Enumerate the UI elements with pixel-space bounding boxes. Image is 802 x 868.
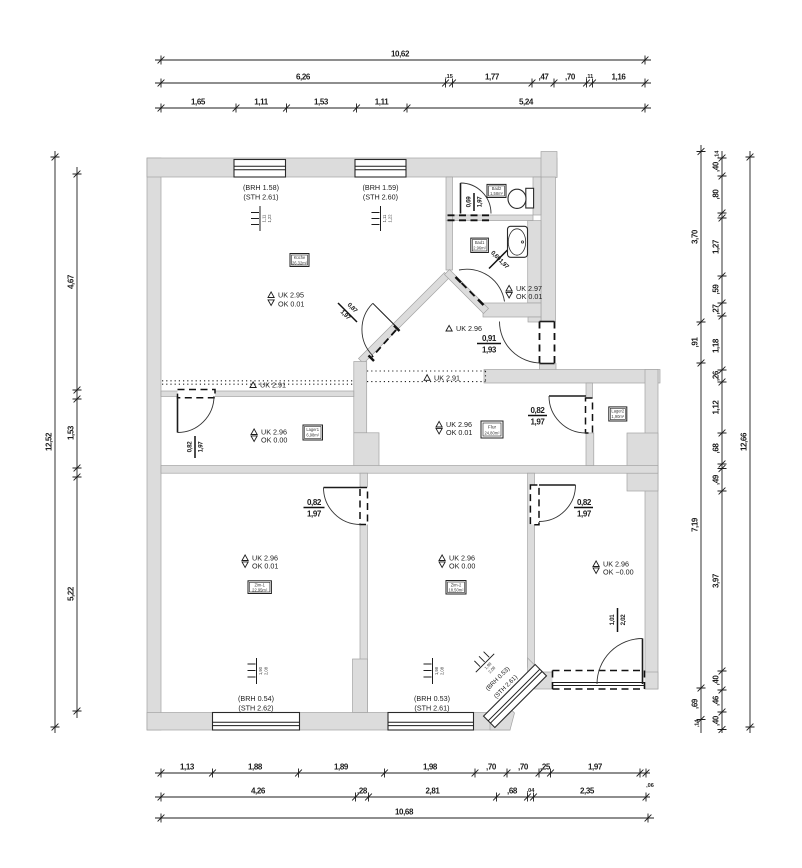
svg-text:OK 0.00: OK 0.00 [261,436,287,445]
svg-text:,15: ,15 [445,74,453,80]
svg-text:1,13: 1,13 [180,763,195,772]
svg-text:,68: ,68 [712,443,721,454]
svg-text:,91: ,91 [691,337,700,348]
svg-text:3,70: 3,70 [691,229,700,244]
svg-text:,80: ,80 [712,189,721,200]
svg-text:OK 0.01: OK 0.01 [516,292,542,301]
svg-text:UK 2.96: UK 2.96 [456,324,482,333]
svg-text:5,24: 5,24 [519,98,534,107]
svg-text:1,27: 1,27 [712,239,721,254]
svg-text:0,82: 0,82 [307,498,322,507]
svg-text:UK 2.95: UK 2.95 [278,291,304,300]
svg-text:1,53: 1,53 [314,98,329,107]
svg-text:1,97: 1,97 [477,196,484,208]
svg-text:1,90m²: 1,90m² [611,414,624,419]
svg-text:0,82: 0,82 [531,406,546,415]
svg-text:18,50m²: 18,50m² [448,588,464,593]
svg-text:Lager2: Lager2 [611,409,624,414]
svg-text:2,96m²: 2,96m² [473,246,486,251]
svg-text:2,08: 2,08 [440,666,445,675]
svg-text:UK 2.91: UK 2.91 [434,373,460,382]
svg-text:Bad1: Bad1 [475,240,485,245]
svg-text:(BRH 1.59): (BRH 1.59) [363,183,399,192]
svg-text:0,69: 0,69 [466,196,473,208]
svg-text:1,88: 1,88 [248,763,263,772]
svg-text:2,35: 2,35 [580,787,595,796]
svg-text:1,93: 1,93 [482,346,497,355]
svg-text:3,97: 3,97 [712,573,721,588]
svg-text:1,11: 1,11 [382,214,387,222]
svg-text:1,11: 1,11 [254,98,268,107]
svg-text:22,95m²: 22,95m² [252,587,268,592]
svg-text:10,62: 10,62 [391,50,410,59]
svg-text:(BRH 1.58): (BRH 1.58) [243,183,279,192]
svg-text:24,80m²: 24,80m² [484,431,500,436]
svg-text:0,82: 0,82 [187,441,194,453]
svg-text:12,66: 12,66 [740,432,749,451]
svg-text:,26: ,26 [712,370,721,381]
svg-text:1,89: 1,89 [334,763,349,772]
svg-text:,46: ,46 [712,695,721,706]
svg-text:(STH 2.60): (STH 2.60) [363,193,398,202]
svg-text:(STH 2.61): (STH 2.61) [243,193,278,202]
svg-text:OK 0.00: OK 0.00 [449,562,475,571]
svg-text:1,65: 1,65 [191,98,206,107]
svg-text:,40: ,40 [712,715,721,726]
svg-text:1,97: 1,97 [531,418,546,427]
svg-text:Lager1: Lager1 [306,427,319,432]
svg-text:1,18: 1,18 [712,338,721,353]
svg-text:4,67: 4,67 [67,274,76,289]
svg-text:(STH 2.62): (STH 2.62) [238,704,273,713]
svg-text:1,97: 1,97 [577,510,592,519]
svg-text:1,16: 1,16 [612,73,627,82]
svg-text:1,53: 1,53 [67,425,76,440]
svg-text:OK 0.01: OK 0.01 [252,562,278,571]
svg-text:,70: ,70 [486,763,497,772]
svg-text:(BRH 0.54): (BRH 0.54) [238,694,274,703]
svg-text:,49: ,49 [712,474,721,485]
svg-text:,59: ,59 [712,284,721,295]
svg-text:0,91: 0,91 [482,334,497,343]
svg-text:,06: ,06 [646,783,654,789]
svg-text:(STH 2.61): (STH 2.61) [414,704,449,713]
svg-text:1,77: 1,77 [485,73,500,82]
svg-text:2,08: 2,08 [264,666,269,675]
svg-text:1,97: 1,97 [588,763,603,772]
svg-text:Küche: Küche [294,255,306,260]
svg-text:,47: ,47 [539,73,550,82]
svg-text:2,02: 2,02 [620,614,627,626]
svg-text:7,19: 7,19 [691,517,700,532]
svg-text:1,22: 1,22 [267,214,272,223]
svg-text:1,11: 1,11 [375,98,389,107]
svg-text:,11: ,11 [586,74,593,80]
svg-text:1,97: 1,97 [307,510,322,519]
svg-text:,28: ,28 [357,787,368,796]
svg-text:OK −0.00: OK −0.00 [603,568,634,577]
svg-text:,27: ,27 [712,304,721,315]
svg-text:5,22: 5,22 [67,586,76,601]
svg-text:1,11: 1,11 [262,214,267,222]
svg-text:(BRH 0.53): (BRH 0.53) [414,694,450,703]
svg-text:1,12: 1,12 [712,400,721,415]
svg-text:2,81: 2,81 [426,787,441,796]
svg-text:,70: ,70 [565,73,576,82]
svg-text:OK 0.01: OK 0.01 [446,428,472,437]
svg-text:,40: ,40 [712,675,721,686]
svg-text:,14: ,14 [715,150,721,159]
svg-text:26,32m²: 26,32m² [292,261,308,266]
svg-text:,40: ,40 [712,161,721,172]
svg-text:,04: ,04 [527,788,536,794]
svg-text:4,26: 4,26 [251,787,266,796]
svg-text:6,98m²: 6,98m² [306,433,319,438]
svg-text:UK 2.91: UK 2.91 [260,381,286,390]
svg-text:1,58m²: 1,58m² [490,191,503,196]
svg-text:,69: ,69 [691,698,700,709]
svg-text:OK 0.01: OK 0.01 [278,300,304,309]
svg-text:1,90: 1,90 [258,666,263,675]
svg-text:1,01: 1,01 [609,614,616,626]
svg-text:6,26: 6,26 [296,73,311,82]
svg-text:,14: ,14 [695,719,701,728]
svg-text:12,52: 12,52 [45,432,54,451]
svg-text:,70: ,70 [518,763,529,772]
svg-text:1,22: 1,22 [388,214,393,223]
svg-text:,68: ,68 [507,787,518,796]
svg-text:1,98: 1,98 [434,666,439,675]
svg-text:1,97: 1,97 [198,441,205,453]
svg-text:10,68: 10,68 [395,808,414,817]
svg-text:0,82: 0,82 [577,498,592,507]
svg-text:,25: ,25 [540,763,551,772]
svg-text:1,98: 1,98 [423,763,438,772]
